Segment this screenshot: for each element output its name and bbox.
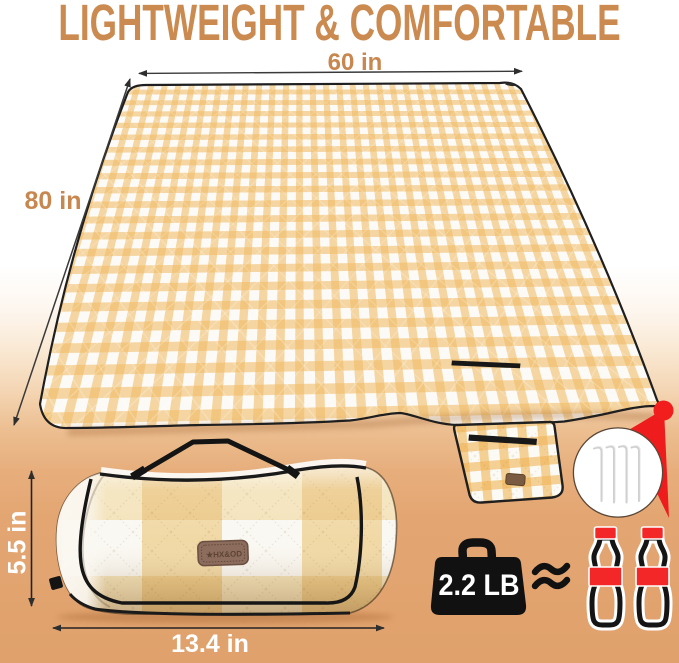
svg-text:★HX&OD: ★HX&OD xyxy=(206,549,243,559)
